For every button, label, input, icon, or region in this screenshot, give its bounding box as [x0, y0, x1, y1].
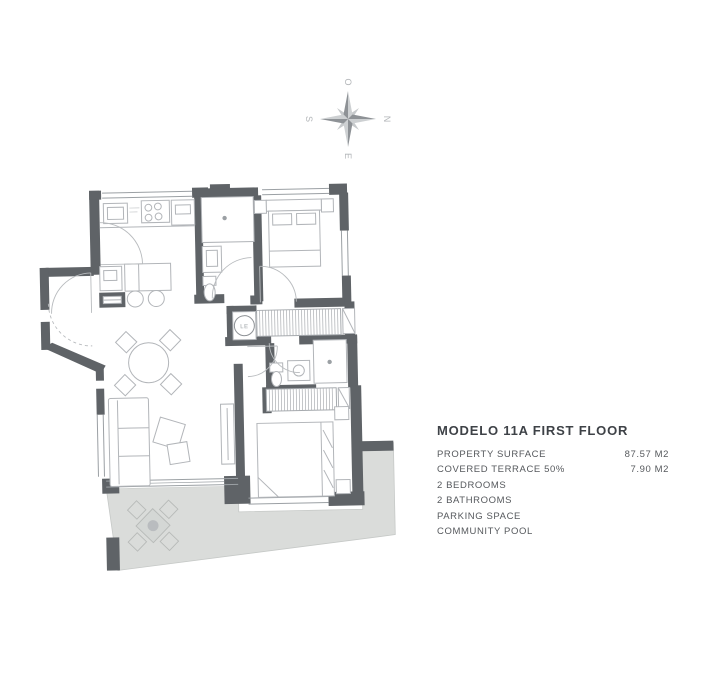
- page-title: MODELO 11A FIRST FLOOR: [437, 423, 669, 438]
- spec-row: PARKING SPACE: [437, 509, 669, 524]
- spec-row: PROPERTY SURFACE 87.57 M2: [437, 447, 669, 462]
- washer-label: LE: [240, 324, 248, 330]
- coffee-table: [167, 442, 190, 465]
- stool: [127, 291, 143, 307]
- stool: [148, 290, 164, 306]
- info-panel: MODELO 11A FIRST FLOOR PROPERTY SURFACE …: [437, 423, 669, 539]
- spec-label: COMMUNITY POOL: [437, 524, 533, 539]
- compass-east-label: E: [343, 153, 353, 159]
- compass-rose-icon: O N E S: [304, 78, 392, 159]
- spec-row: 2 BATHROOMS: [437, 493, 669, 508]
- dining-table: [128, 342, 169, 383]
- shower-1: [201, 196, 254, 242]
- spec-row: COVERED TERRACE 50% 7.90 M2: [437, 462, 669, 477]
- floor-plan: O N E S: [0, 0, 724, 696]
- nightstand: [254, 200, 266, 213]
- headboard: [266, 199, 321, 211]
- spec-value: 7.90 M2: [630, 462, 669, 477]
- kitchen-island: [125, 263, 172, 291]
- spec-row: 2 BEDROOMS: [437, 478, 669, 493]
- sink-2: [288, 360, 310, 380]
- nightstand: [335, 407, 349, 420]
- nightstand: [321, 199, 333, 212]
- compass-north-label: N: [382, 116, 392, 123]
- page: O N E S: [0, 0, 724, 696]
- spec-row: COMMUNITY POOL: [437, 524, 669, 539]
- bed-2: [257, 422, 335, 498]
- spec-label: PROPERTY SURFACE: [437, 447, 546, 462]
- nightstand: [336, 480, 350, 494]
- spec-label: PARKING SPACE: [437, 509, 521, 524]
- sofa: [108, 398, 150, 487]
- spec-label: 2 BATHROOMS: [437, 493, 512, 508]
- furniture: [98, 194, 358, 500]
- spec-value: 87.57 M2: [625, 447, 669, 462]
- spec-label: COVERED TERRACE 50%: [437, 462, 565, 477]
- compass-west-label: O: [343, 78, 353, 85]
- compass-south-label: S: [304, 116, 314, 122]
- spec-label: 2 BEDROOMS: [437, 478, 506, 493]
